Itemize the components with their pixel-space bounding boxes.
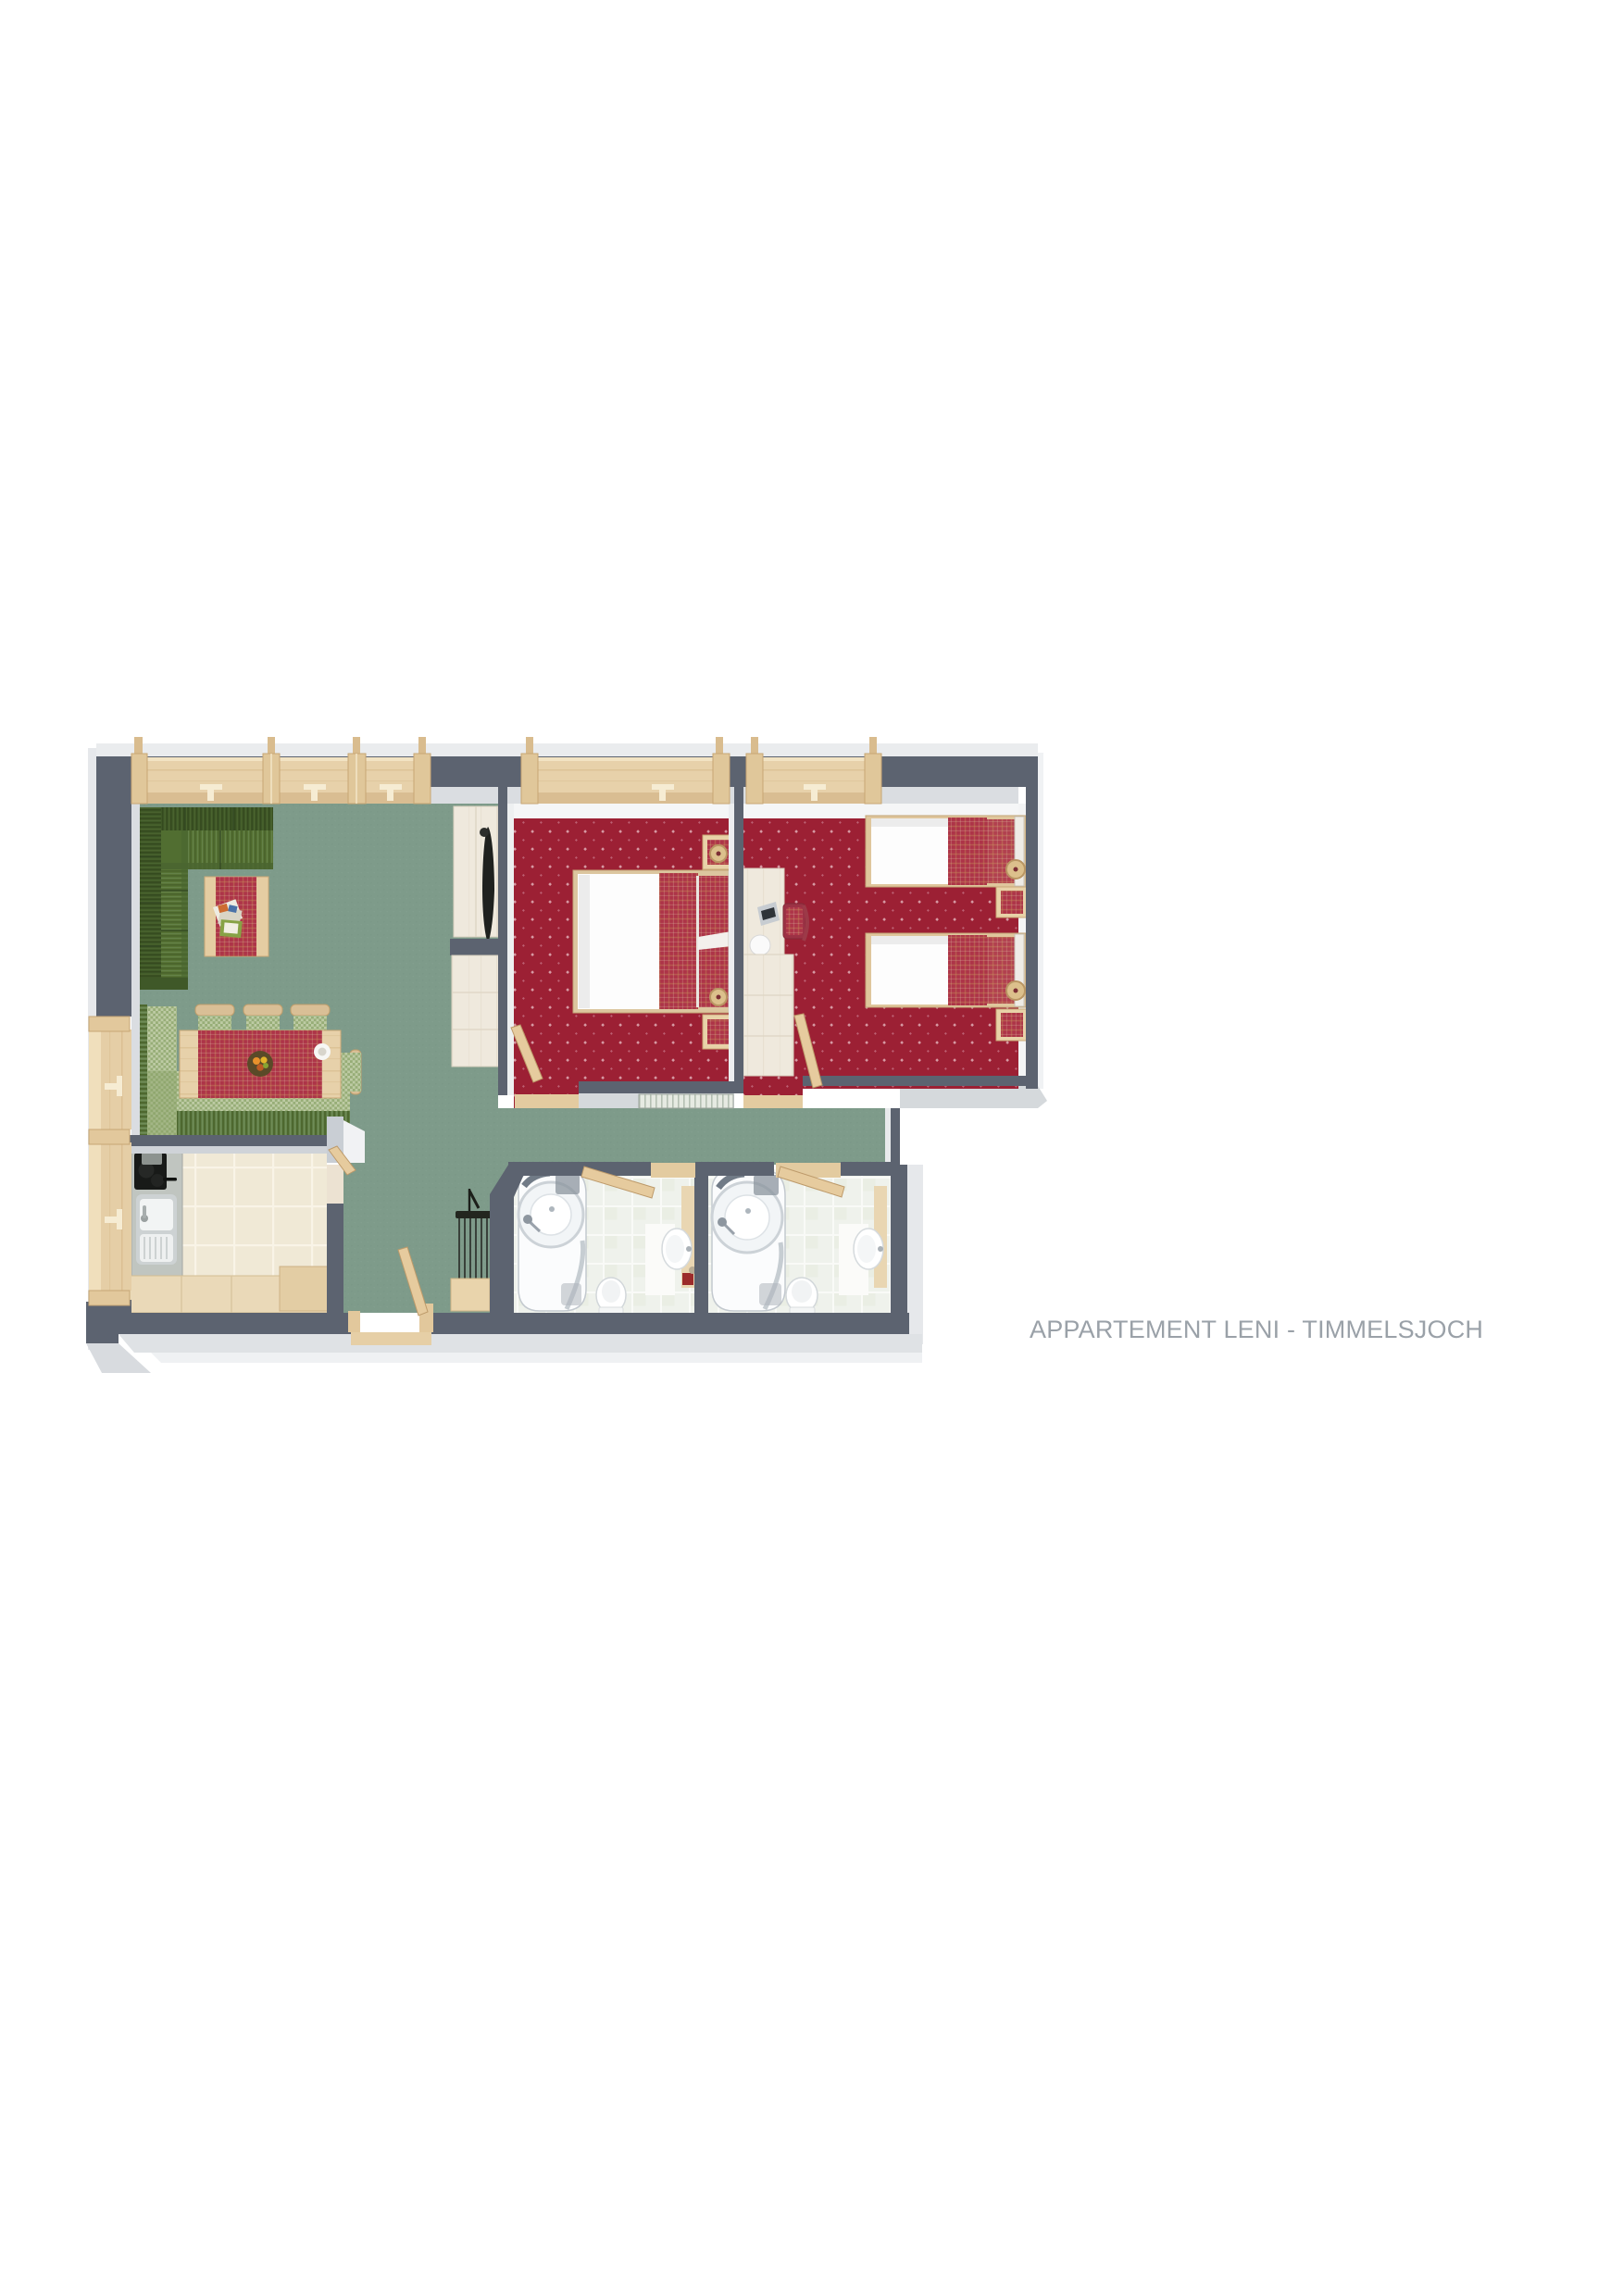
svg-text:APPARTEMENT LENI - TIMMELSJOCH: APPARTEMENT LENI - TIMMELSJOCH [1030, 1316, 1483, 1343]
